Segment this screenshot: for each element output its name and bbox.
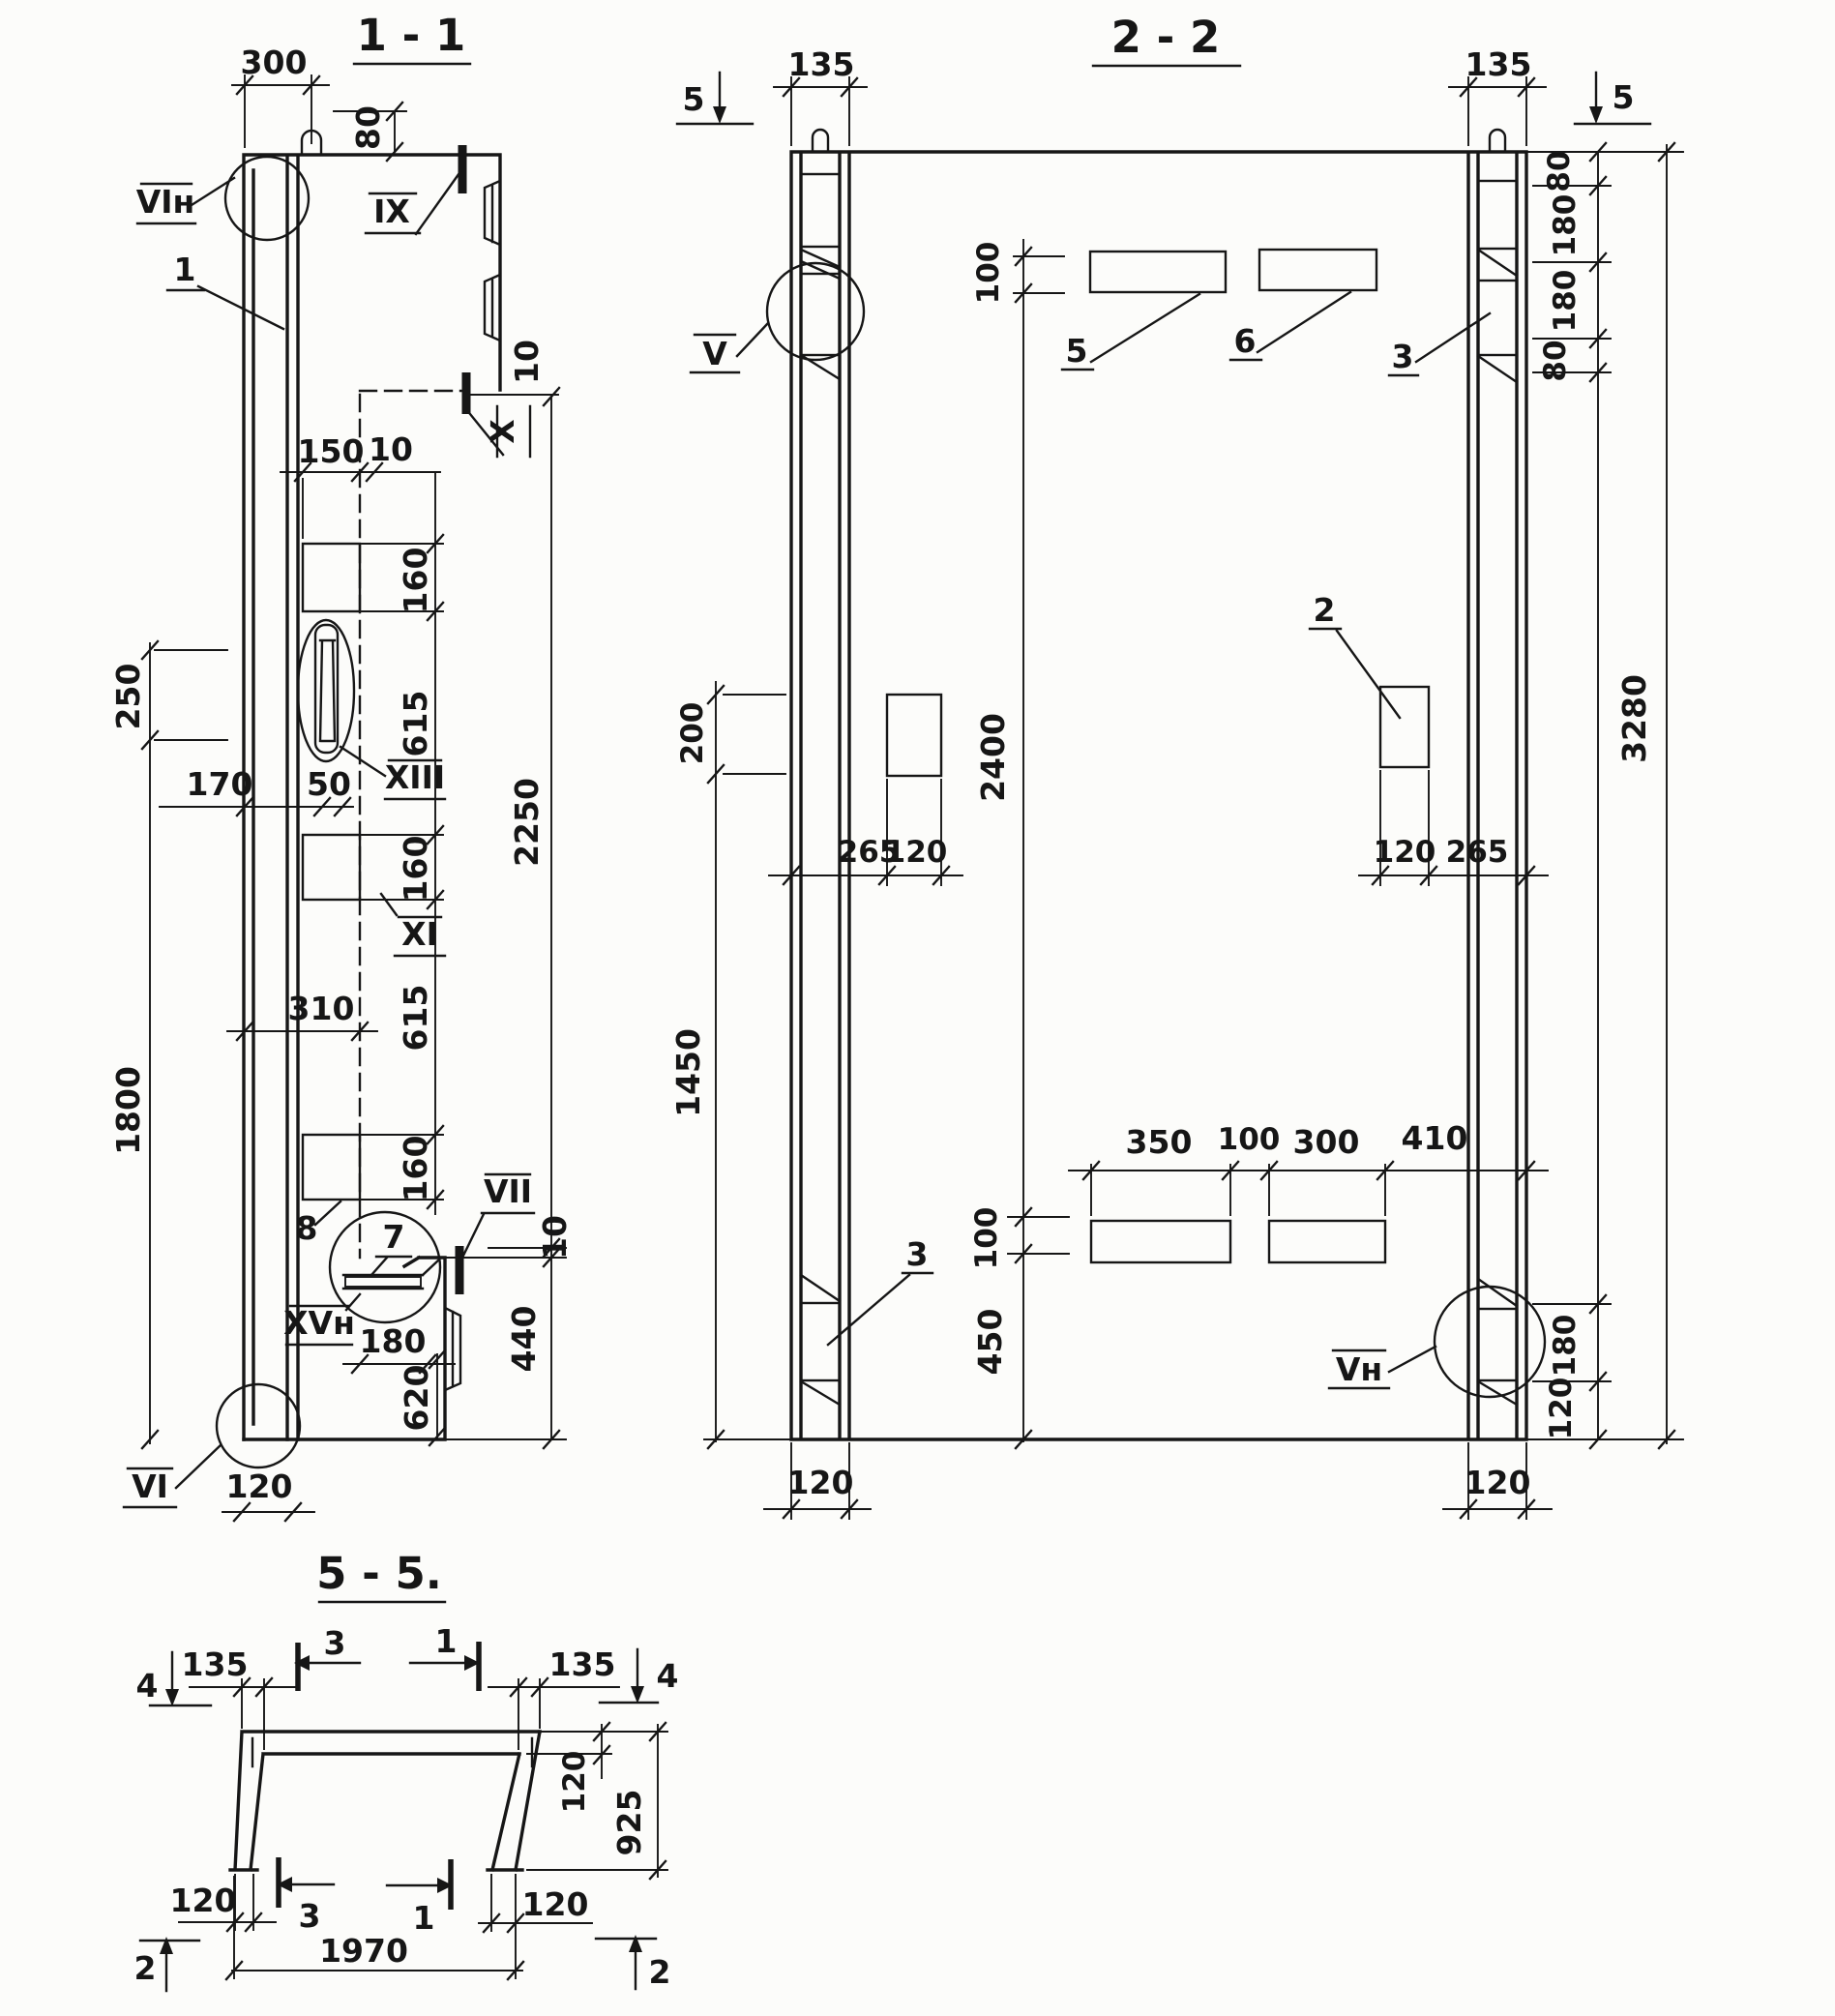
rebar-hatch	[1478, 181, 1517, 249]
label-2: 2	[1314, 591, 1336, 629]
marker-2-right: 2	[649, 1953, 671, 1991]
rebar-hatch	[801, 274, 840, 355]
dim-135-right: 135	[1465, 45, 1532, 83]
dim-135-right: 135	[549, 1645, 616, 1683]
rebar-hatch	[345, 1277, 421, 1287]
dim-1800: 1800	[109, 1066, 147, 1155]
rebar-hatch	[801, 1303, 840, 1380]
dim-100-top: 100	[971, 242, 1006, 305]
section-5-5-linework	[230, 1732, 540, 1870]
rebar-mesh-2	[1380, 687, 1429, 767]
rebar-mesh-5	[1090, 252, 1226, 292]
rebar-mesh	[1091, 1221, 1230, 1262]
detail-circle-vin	[225, 157, 309, 240]
section-2-2: 2 - 2 5 5 135 135 80 180 180 80 3280 100…	[669, 12, 1683, 1519]
marker-1-top: 1	[435, 1622, 458, 1660]
dim-160-a: 160	[397, 548, 434, 614]
label-6: 6	[1234, 322, 1257, 360]
label-vi: VI	[132, 1468, 168, 1505]
section-arrow-down-icon	[165, 1689, 179, 1706]
rebar-mesh	[1269, 1221, 1385, 1262]
rebar-hatch	[303, 835, 360, 900]
dim-120-c: 120	[1544, 1378, 1579, 1440]
dim-50: 50	[307, 765, 351, 803]
dim-80-b: 80	[1538, 340, 1573, 381]
dim-180-a: 180	[1548, 194, 1583, 257]
label-ix: IX	[373, 193, 410, 230]
section-arrow-up-icon	[160, 1937, 173, 1954]
section-arrow-up-icon	[629, 1935, 642, 1952]
section-arrow-down-icon	[631, 1686, 644, 1704]
dim-300: 300	[1293, 1123, 1360, 1161]
marker-5-left: 5	[683, 80, 705, 118]
label-x: X	[484, 419, 521, 443]
section-arrow-down-icon	[713, 106, 726, 124]
dim-2250: 2250	[508, 778, 546, 867]
section-1-1-hatch	[303, 544, 360, 1200]
dim-1450: 1450	[669, 1028, 707, 1117]
label-1: 1	[174, 251, 196, 288]
dim-135-left: 135	[182, 1645, 249, 1683]
rebar-hatch	[1478, 1309, 1517, 1380]
section-1-1: 1 - 1 300 80 VIн IX 1 10 X 150 10 160 25…	[109, 10, 574, 1521]
dim-ticks	[226, 1678, 666, 1979]
dim-440: 440	[505, 1306, 543, 1373]
dim-180-b: 180	[1548, 270, 1583, 333]
marker-1-bot: 1	[413, 1899, 435, 1937]
dim-310: 310	[288, 990, 355, 1027]
section-1-1-labels: 1 - 1 300 80 VIн IX 1 10 X 150 10 160 25…	[109, 10, 574, 1505]
marker-4-right: 4	[657, 1657, 679, 1695]
dim-10-mid: 10	[369, 430, 413, 468]
drawing-sheet: 1 - 1 300 80 VIн IX 1 10 X 150 10 160 25…	[0, 0, 1835, 2016]
blueprint-svg: 1 - 1 300 80 VIн IX 1 10 X 150 10 160 25…	[0, 0, 1835, 2016]
label-xiii: XIII	[385, 758, 445, 796]
label-v: V	[702, 335, 727, 372]
dim-620: 620	[398, 1365, 435, 1432]
label-vii: VII	[484, 1172, 532, 1210]
dim-120-rib-right: 120	[1465, 1464, 1531, 1501]
dim-250: 250	[109, 664, 147, 730]
dim-180-c: 180	[1548, 1315, 1583, 1378]
label-8: 8	[296, 1209, 318, 1247]
dim-120-bot-right: 120	[522, 1885, 589, 1923]
label-5: 5	[1066, 332, 1088, 370]
section-2-2-linework	[704, 130, 1683, 1439]
rebar-hatch	[303, 1135, 360, 1200]
dim-2400: 2400	[974, 713, 1012, 802]
dim-120-right: 120	[1374, 835, 1436, 870]
rebar-hatch	[303, 544, 360, 611]
rebar-mesh	[887, 695, 941, 776]
marker-5-right: 5	[1613, 78, 1635, 116]
label-7: 7	[383, 1218, 405, 1256]
dim-120-slab: 120	[557, 1751, 592, 1814]
dim-3280: 3280	[1615, 674, 1653, 763]
section-title: 2 - 2	[1111, 12, 1221, 63]
section-5-5: 5 - 5. 4 4 135 135 3 1 120 925 120 3 1 1…	[134, 1548, 679, 1991]
dim-120: 120	[226, 1468, 293, 1505]
dim-925: 925	[610, 1790, 648, 1856]
dim-180: 180	[360, 1322, 427, 1360]
dim-120-rib-left: 120	[787, 1464, 854, 1501]
dim-80: 80	[349, 105, 387, 150]
dim-10-top: 10	[508, 340, 546, 384]
dim-170: 170	[187, 765, 253, 803]
label-vi-n: VIн	[136, 183, 195, 221]
anchor-hook-icon	[813, 130, 828, 152]
label-v-n: Vн	[1336, 1350, 1382, 1388]
dim-300: 300	[241, 44, 308, 81]
label-xi: XI	[401, 915, 438, 953]
dim-150: 150	[298, 432, 365, 470]
dim-ticks	[708, 78, 1674, 1518]
dim-350: 350	[1126, 1123, 1193, 1161]
dim-10-bot: 10	[536, 1215, 574, 1260]
dim-120-bot-left: 120	[170, 1882, 237, 1919]
marker-2-left: 2	[134, 1949, 157, 1987]
dim-1970: 1970	[319, 1932, 408, 1970]
dim-80-a: 80	[1542, 150, 1577, 192]
dim-135-left: 135	[788, 45, 855, 83]
dim-410: 410	[1402, 1119, 1468, 1157]
dim-615-a: 615	[397, 691, 434, 757]
marker-3-top: 3	[324, 1624, 346, 1662]
section-arrow-down-icon	[1589, 106, 1603, 124]
rebar-hatch	[801, 174, 840, 247]
section-5-5-labels: 5 - 5. 4 4 135 135 3 1 120 925 120 3 1 1…	[134, 1548, 679, 1991]
dim-200: 200	[675, 702, 710, 765]
anchor-hook-icon	[1490, 130, 1505, 152]
dim-160-c: 160	[397, 1136, 434, 1202]
dim-160-b: 160	[397, 836, 434, 903]
dim-120-left: 120	[885, 835, 948, 870]
dim-450: 450	[971, 1309, 1009, 1376]
section-title: 5 - 5.	[316, 1548, 442, 1599]
marker-3-bot: 3	[299, 1897, 321, 1935]
section-2-2-labels: 2 - 2 5 5 135 135 80 180 180 80 3280 100…	[669, 12, 1653, 1501]
dim-100-bot: 100	[969, 1207, 1004, 1270]
marker-4-left: 4	[136, 1667, 159, 1705]
section-title: 1 - 1	[357, 10, 466, 61]
label-3-top: 3	[1392, 338, 1414, 375]
rebar-mesh-6	[1259, 250, 1376, 290]
dim-615-b: 615	[397, 985, 434, 1052]
label-xv-n: XVн	[283, 1304, 355, 1342]
label-3-bot: 3	[906, 1235, 929, 1273]
dim-265-right: 265	[1446, 835, 1509, 870]
dim-100-b: 100	[1218, 1122, 1281, 1157]
